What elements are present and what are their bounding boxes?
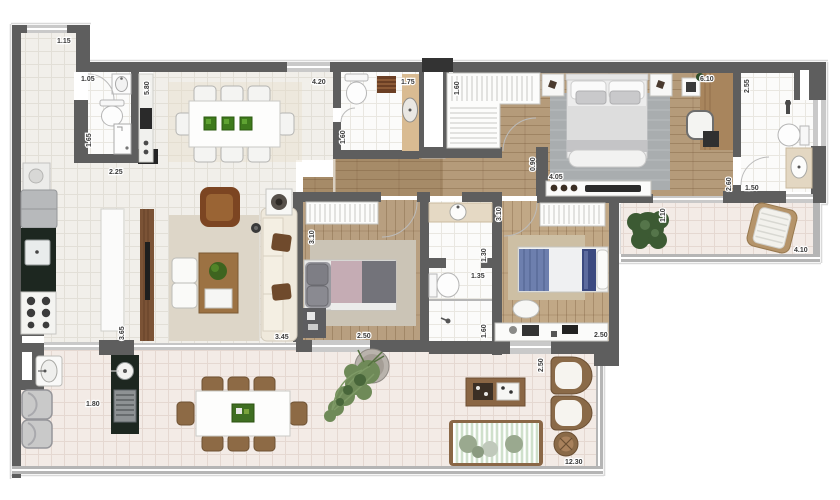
svg-text:3.10: 3.10 [309,230,316,244]
svg-text:2.50: 2.50 [357,333,371,340]
svg-text:1.10: 1.10 [660,208,667,222]
svg-text:6.10: 6.10 [700,76,714,83]
svg-text:3.65: 3.65 [119,326,126,340]
svg-text:1.80: 1.80 [86,401,100,408]
svg-text:3.10: 3.10 [496,207,503,221]
svg-text:2.25: 2.25 [109,169,123,176]
svg-text:1.65: 1.65 [86,133,93,147]
svg-text:0.90: 0.90 [530,157,537,171]
svg-text:1.60: 1.60 [481,324,488,338]
svg-text:1.75: 1.75 [401,79,415,86]
svg-text:4.20: 4.20 [312,79,326,86]
svg-text:1.35: 1.35 [471,273,485,280]
svg-text:1.60: 1.60 [454,81,461,95]
svg-text:12.30: 12.30 [565,459,583,466]
svg-text:2.55: 2.55 [744,79,751,93]
svg-text:1.30: 1.30 [481,248,488,262]
svg-text:1.05: 1.05 [81,76,95,83]
svg-text:2.50: 2.50 [594,332,608,339]
svg-text:4.05: 4.05 [549,174,563,181]
svg-text:2.50: 2.50 [538,358,545,372]
svg-text:2.60: 2.60 [726,177,733,191]
svg-text:4.10: 4.10 [794,247,808,254]
svg-text:1.15: 1.15 [57,38,71,45]
svg-text:5.80: 5.80 [144,81,151,95]
svg-text:1.50: 1.50 [745,185,759,192]
svg-text:1.60: 1.60 [340,130,347,144]
svg-text:3.45: 3.45 [275,334,289,341]
